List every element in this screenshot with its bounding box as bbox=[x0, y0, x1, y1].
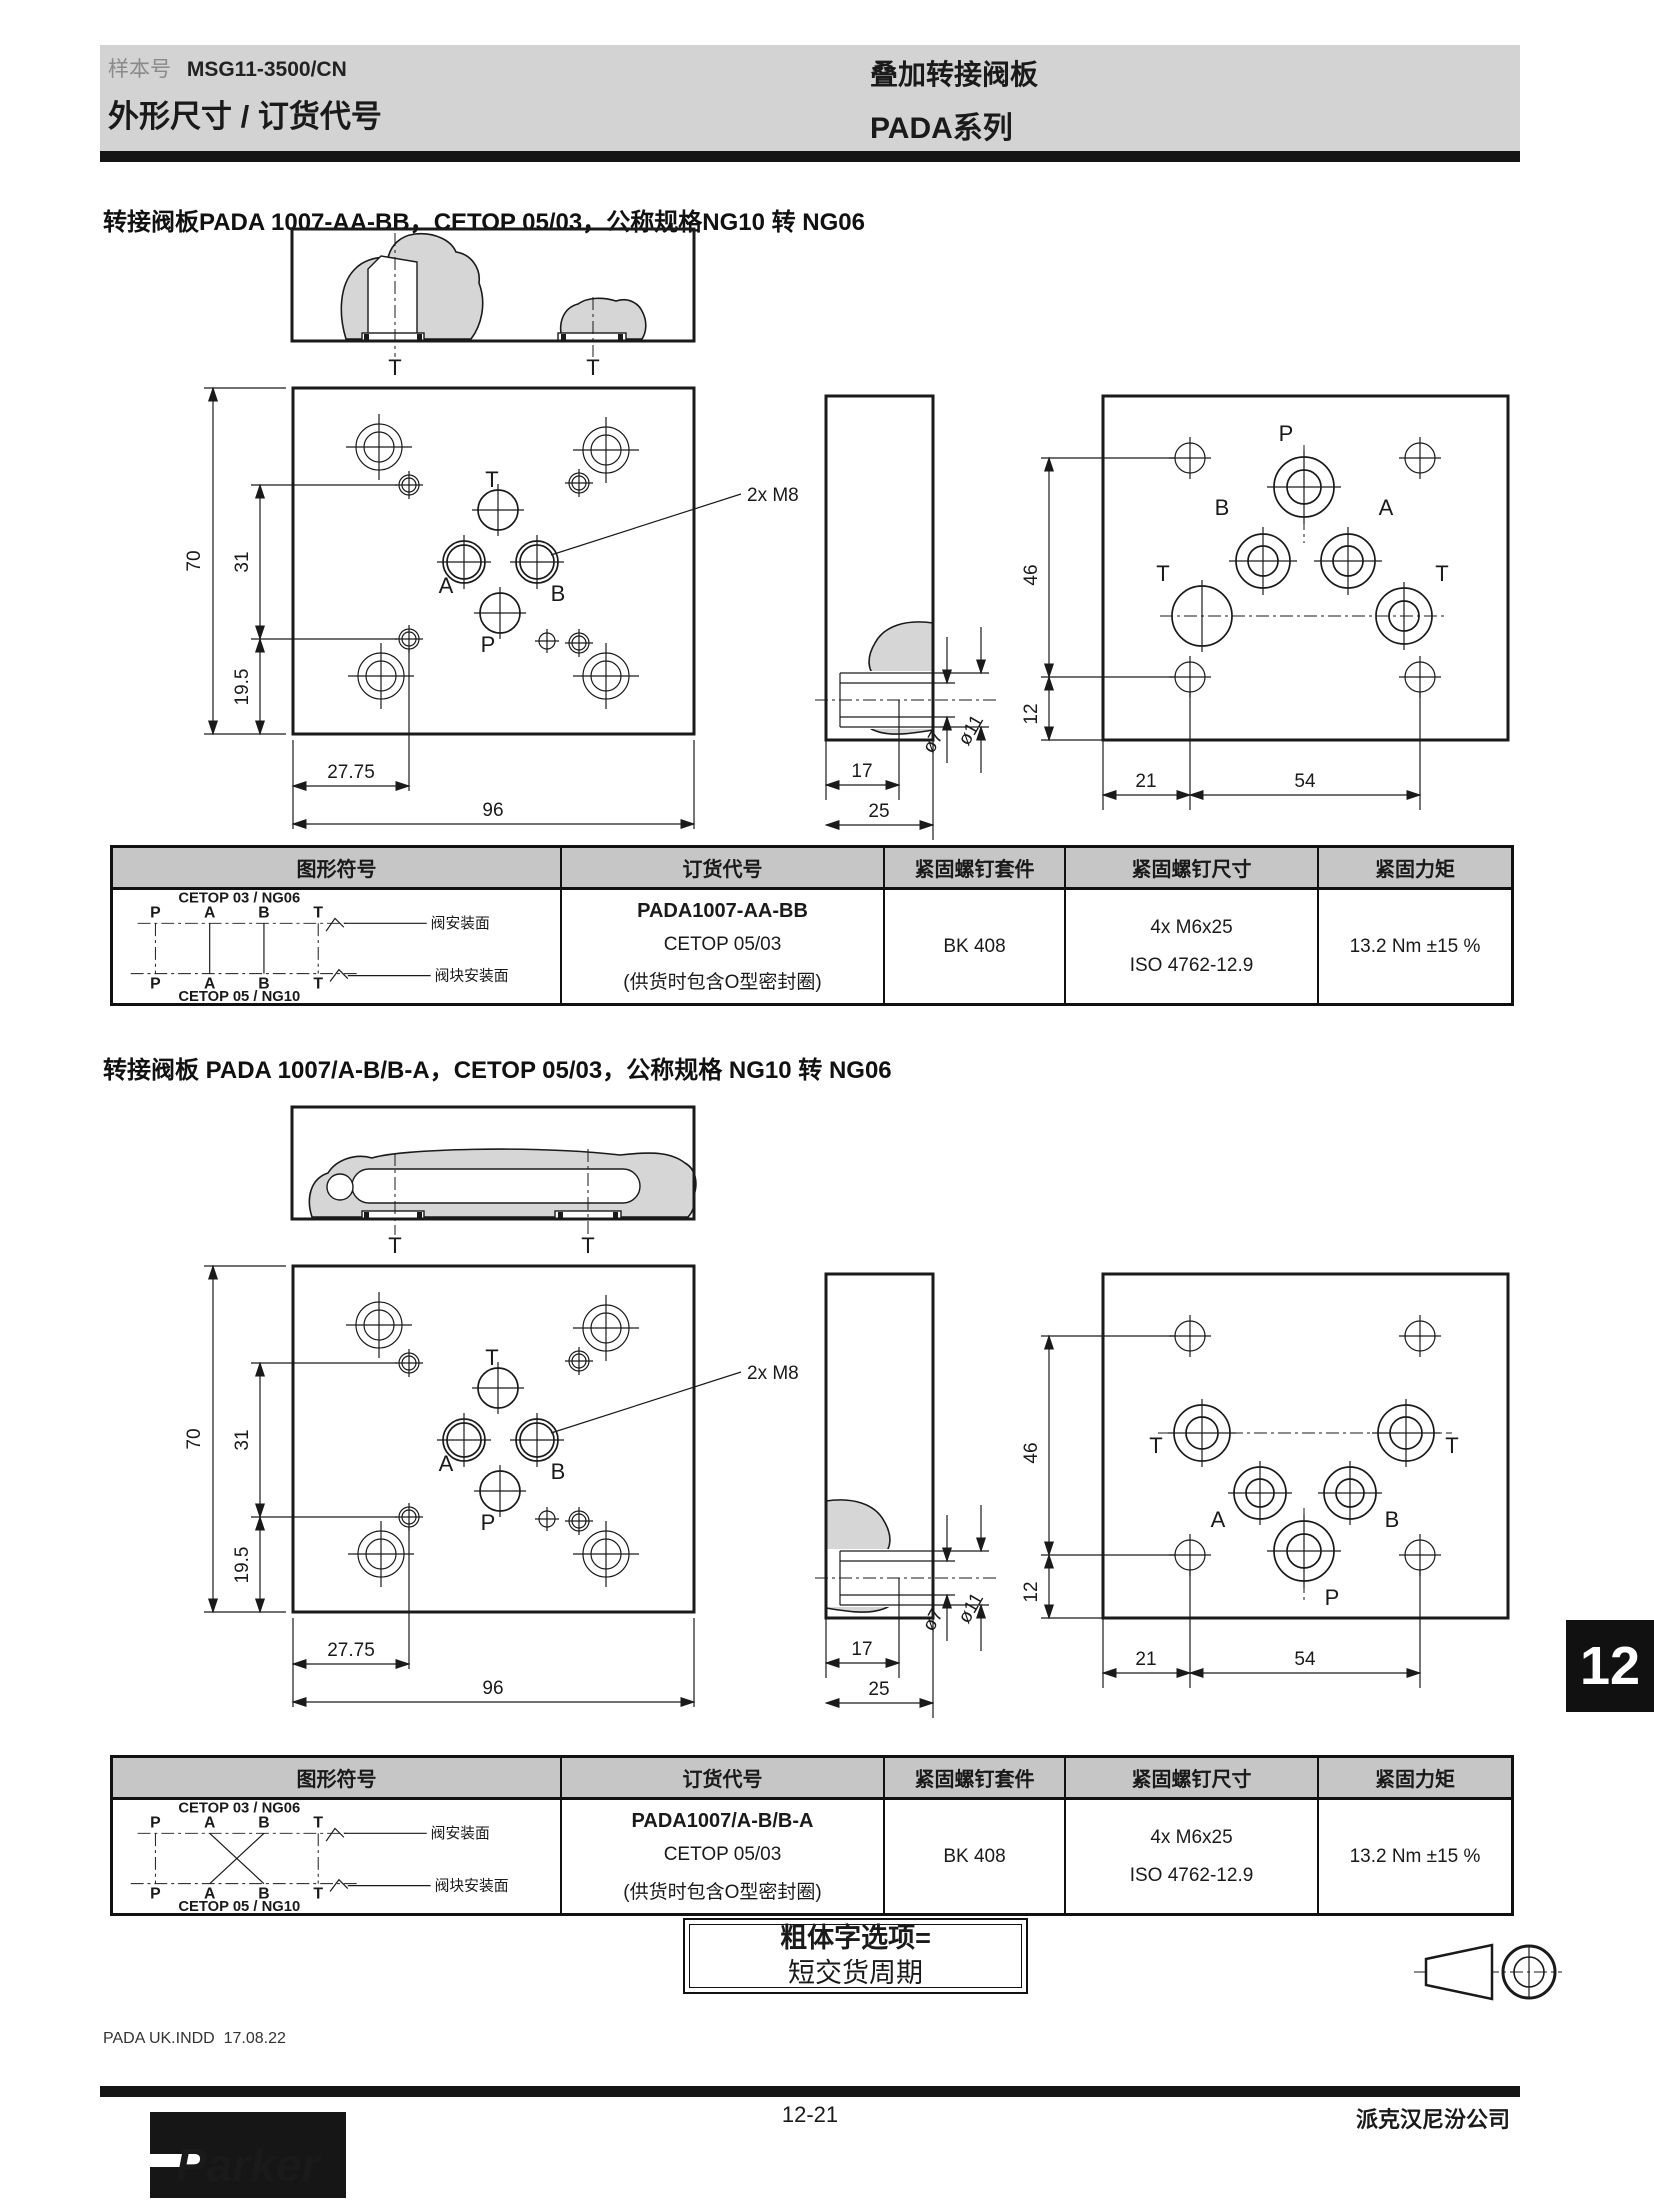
port-label-b: B bbox=[551, 1459, 566, 1484]
symbol-port: P bbox=[150, 975, 161, 992]
col-header-symbol: 图形符号 bbox=[113, 1758, 560, 1800]
note-line-2: 短交货周期 bbox=[788, 1956, 923, 1991]
port-label-t: T bbox=[1156, 561, 1169, 586]
port-label-t: T bbox=[388, 355, 401, 380]
dim-back-bottom: 12 bbox=[1021, 1581, 1042, 1602]
port-label-p: P bbox=[1325, 1585, 1340, 1610]
dim-back-height: 46 bbox=[1021, 1442, 1042, 1463]
page-title: 外形尺寸 / 订货代号 bbox=[108, 91, 382, 136]
symbol-b-standard: CETOP 05 / NG10 bbox=[178, 1899, 300, 1913]
order-table-2: 图形符号 订货代号 紧固螺钉套件 紧固螺钉尺寸 紧固力矩 CETOP 03 / … bbox=[110, 1755, 1514, 1916]
col-header-screw-kit: 紧固螺钉套件 bbox=[883, 848, 1064, 890]
symbol-port: T bbox=[313, 1885, 323, 1902]
section-2-title: 转接阀板 PADA 1007/A-B/B-A，CETOP 05/03，公称规格 … bbox=[103, 1050, 892, 1085]
col-header-symbol: 图形符号 bbox=[113, 848, 560, 890]
dim-back-bottom: 12 bbox=[1021, 703, 1042, 724]
dim-back-left: 21 bbox=[1135, 771, 1156, 792]
back-face-view: T T A B P 46 12 21 54 bbox=[1021, 1274, 1508, 1688]
cetop-spec: CETOP 05/03 bbox=[664, 1844, 782, 1866]
port-label-a: A bbox=[1379, 495, 1394, 520]
thread-callout: 2x M8 bbox=[747, 1363, 799, 1384]
header-rule bbox=[100, 151, 1520, 162]
doc-number: MSG11-3500/CN bbox=[187, 58, 347, 81]
col-header-order-code: 订货代号 bbox=[560, 1758, 883, 1800]
dim-thickness: 25 bbox=[868, 801, 889, 822]
port-label-a: A bbox=[439, 1451, 454, 1476]
port-label-t: T bbox=[581, 1233, 594, 1258]
section-2-drawing: T T T A B P bbox=[100, 1103, 1520, 1718]
note-line-1: 粗体字选项= bbox=[780, 1921, 931, 1956]
screw-standard: ISO 4762-12.9 bbox=[1130, 955, 1254, 977]
symbol-port: T bbox=[313, 975, 323, 992]
symbol-port: P bbox=[150, 904, 161, 921]
first-angle-projection-icon bbox=[1412, 1936, 1564, 2008]
screw-size-cell: 4x M6x25 ISO 4762-12.9 bbox=[1064, 890, 1317, 1003]
dim-depth: 17 bbox=[851, 1639, 872, 1660]
symbol-port: P bbox=[150, 1885, 161, 1902]
section-1-drawing: T T T A B bbox=[100, 225, 1520, 840]
dim-offset: 27.75 bbox=[327, 762, 375, 783]
port-label-b: B bbox=[551, 581, 566, 606]
parker-logo-text: Parker bbox=[176, 2139, 321, 2191]
dim-back-height: 46 bbox=[1021, 564, 1042, 585]
manifold-face-label: 阀块安装面 bbox=[435, 968, 509, 985]
dim-back-span: 54 bbox=[1294, 771, 1316, 792]
symbol-top-standard: CETOP 03 / NG06 bbox=[178, 891, 300, 907]
torque-value: 13.2 Nm ±15 % bbox=[1350, 936, 1481, 958]
product-title: 叠加转接阀板 bbox=[870, 53, 1038, 93]
front-view: T A B P 2x M8 70 31 19.5 27.75 96 bbox=[184, 1266, 799, 1707]
chapter-tab: 12 bbox=[1566, 1620, 1654, 1712]
screw-size: 4x M6x25 bbox=[1150, 1827, 1232, 1849]
torque-cell: 13.2 Nm ±15 % bbox=[1317, 890, 1511, 1003]
dim-lower: 19.5 bbox=[232, 1547, 253, 1584]
symbol-cell: CETOP 03 / NG06 P A B T 阀安装面 阀块安装面 P A B… bbox=[113, 890, 560, 1003]
top-profile-view: T T bbox=[292, 1107, 696, 1258]
back-face-view: P B A T T 46 12 21 54 bbox=[1021, 396, 1508, 810]
footer-rule bbox=[100, 2086, 1520, 2097]
port-label-a: A bbox=[1211, 1507, 1226, 1532]
port-label-t: T bbox=[388, 1233, 401, 1258]
dim-back-span: 54 bbox=[1294, 1649, 1316, 1670]
screw-kit-cell: BK 408 bbox=[883, 890, 1064, 1003]
header-right: 叠加转接阀板 PADA系列 bbox=[870, 53, 1038, 147]
dim-width: 96 bbox=[482, 800, 503, 821]
manifold-face-label: 阀块安装面 bbox=[435, 1878, 509, 1895]
port-label-b: B bbox=[1385, 1507, 1400, 1532]
col-header-order-code: 订货代号 bbox=[560, 848, 883, 890]
dim-width: 96 bbox=[482, 1678, 503, 1699]
port-label-p: P bbox=[481, 632, 496, 657]
bold-option-note: 粗体字选项= 短交货周期 bbox=[683, 1918, 1028, 1994]
port-label-p: P bbox=[1279, 421, 1294, 446]
port-label-t: T bbox=[485, 467, 498, 492]
series-title: PADA系列 bbox=[870, 103, 1038, 147]
cetop-spec: CETOP 05/03 bbox=[664, 934, 782, 956]
port-label-b: B bbox=[1215, 495, 1230, 520]
symbol-port: T bbox=[313, 1814, 323, 1831]
symbol-top-standard: CETOP 03 / NG06 bbox=[178, 1801, 300, 1817]
symbol-port: A bbox=[204, 904, 215, 921]
adapter-symbol-crossed: CETOP 03 / NG06 P A B T 阀安装面 阀块安装面 P A B… bbox=[113, 1800, 554, 1913]
port-label-t: T bbox=[1149, 1433, 1162, 1458]
seal-note: (供货时包含O型密封圈) bbox=[623, 1877, 821, 1904]
port-label-t: T bbox=[485, 1345, 498, 1370]
port-label-t: T bbox=[1435, 561, 1448, 586]
order-code: PADA1007-AA-BB bbox=[637, 900, 808, 923]
col-header-torque: 紧固力矩 bbox=[1317, 848, 1511, 890]
table-row: CETOP 03 / NG06 P A B T 阀安装面 阀块安装面 P A B… bbox=[113, 1800, 1511, 1913]
dim-offset: 27.75 bbox=[327, 1640, 375, 1661]
valve-face-label: 阀安装面 bbox=[431, 915, 490, 932]
screw-size-cell: 4x M6x25 ISO 4762-12.9 bbox=[1064, 1800, 1317, 1913]
dim-height: 70 bbox=[184, 1428, 205, 1449]
symbol-port: B bbox=[258, 1814, 269, 1831]
company-name: 派克汉尼汾公司 bbox=[1100, 2102, 1510, 2134]
order-code-cell: PADA1007/A-B/B-A CETOP 05/03 (供货时包含O型密封圈… bbox=[560, 1800, 883, 1913]
side-section-view: ø7 ø11 17 25 bbox=[815, 396, 1000, 840]
side-section-view: ø7 ø11 17 25 bbox=[815, 1274, 1000, 1718]
col-header-screw-size: 紧固螺钉尺寸 bbox=[1064, 848, 1317, 890]
dim-dia-large: ø11 bbox=[954, 711, 988, 749]
front-view: T A B P 2x M8 70 31 19.5 27.75 96 bbox=[184, 388, 799, 829]
dim-depth: 17 bbox=[851, 761, 872, 782]
symbol-port: P bbox=[150, 1814, 161, 1831]
order-table-1: 图形符号 订货代号 紧固螺钉套件 紧固螺钉尺寸 紧固力矩 CETOP 03 / … bbox=[110, 845, 1514, 1006]
port-label-t: T bbox=[1445, 1433, 1458, 1458]
doc-type-label: 样本号 bbox=[108, 58, 171, 81]
dim-upper: 31 bbox=[232, 551, 253, 572]
top-profile-view: T T bbox=[292, 229, 694, 380]
table-row: CETOP 03 / NG06 P A B T 阀安装面 阀块安装面 P A B… bbox=[113, 890, 1511, 1003]
dim-upper: 31 bbox=[232, 1429, 253, 1450]
torque-value: 13.2 Nm ±15 % bbox=[1350, 1846, 1481, 1868]
col-header-torque: 紧固力矩 bbox=[1317, 1758, 1511, 1800]
order-code: PADA1007/A-B/B-A bbox=[632, 1810, 814, 1833]
symbol-b-standard: CETOP 05 / NG10 bbox=[178, 989, 300, 1003]
dim-back-left: 21 bbox=[1135, 1649, 1156, 1670]
screw-size: 4x M6x25 bbox=[1150, 917, 1232, 939]
seal-note: (供货时包含O型密封圈) bbox=[623, 967, 821, 994]
symbol-cell: CETOP 03 / NG06 P A B T 阀安装面 阀块安装面 P A B… bbox=[113, 1800, 560, 1913]
screw-standard: ISO 4762-12.9 bbox=[1130, 1865, 1254, 1887]
valve-face-label: 阀安装面 bbox=[431, 1825, 490, 1842]
order-code-cell: PADA1007-AA-BB CETOP 05/03 (供货时包含O型密封圈) bbox=[560, 890, 883, 1003]
screw-kit-cell: BK 408 bbox=[883, 1800, 1064, 1913]
symbol-port: B bbox=[258, 904, 269, 921]
header-left: 样本号 MSG11-3500/CN 外形尺寸 / 订货代号 bbox=[108, 53, 382, 136]
adapter-symbol-parallel: CETOP 03 / NG06 P A B T 阀安装面 阀块安装面 P A B… bbox=[113, 890, 554, 1003]
port-label-t: T bbox=[586, 355, 599, 380]
file-note: PADA UK.INDD 17.08.22 bbox=[103, 2030, 286, 2048]
col-header-screw-kit: 紧固螺钉套件 bbox=[883, 1758, 1064, 1800]
thread-callout: 2x M8 bbox=[747, 485, 799, 506]
port-label-a: A bbox=[439, 573, 454, 598]
symbol-port: T bbox=[313, 904, 323, 921]
screw-kit: BK 408 bbox=[943, 1846, 1005, 1868]
symbol-port: A bbox=[204, 1814, 215, 1831]
dim-thickness: 25 bbox=[868, 1679, 889, 1700]
dim-lower: 19.5 bbox=[232, 669, 253, 706]
port-label-p: P bbox=[481, 1510, 496, 1535]
dim-dia-large: ø11 bbox=[954, 1589, 988, 1627]
col-header-screw-size: 紧固螺钉尺寸 bbox=[1064, 1758, 1317, 1800]
torque-cell: 13.2 Nm ±15 % bbox=[1317, 1800, 1511, 1913]
dim-height: 70 bbox=[184, 550, 205, 571]
screw-kit: BK 408 bbox=[943, 936, 1005, 958]
page-header-band: 样本号 MSG11-3500/CN 外形尺寸 / 订货代号 叠加转接阀板 PAD… bbox=[100, 45, 1520, 151]
